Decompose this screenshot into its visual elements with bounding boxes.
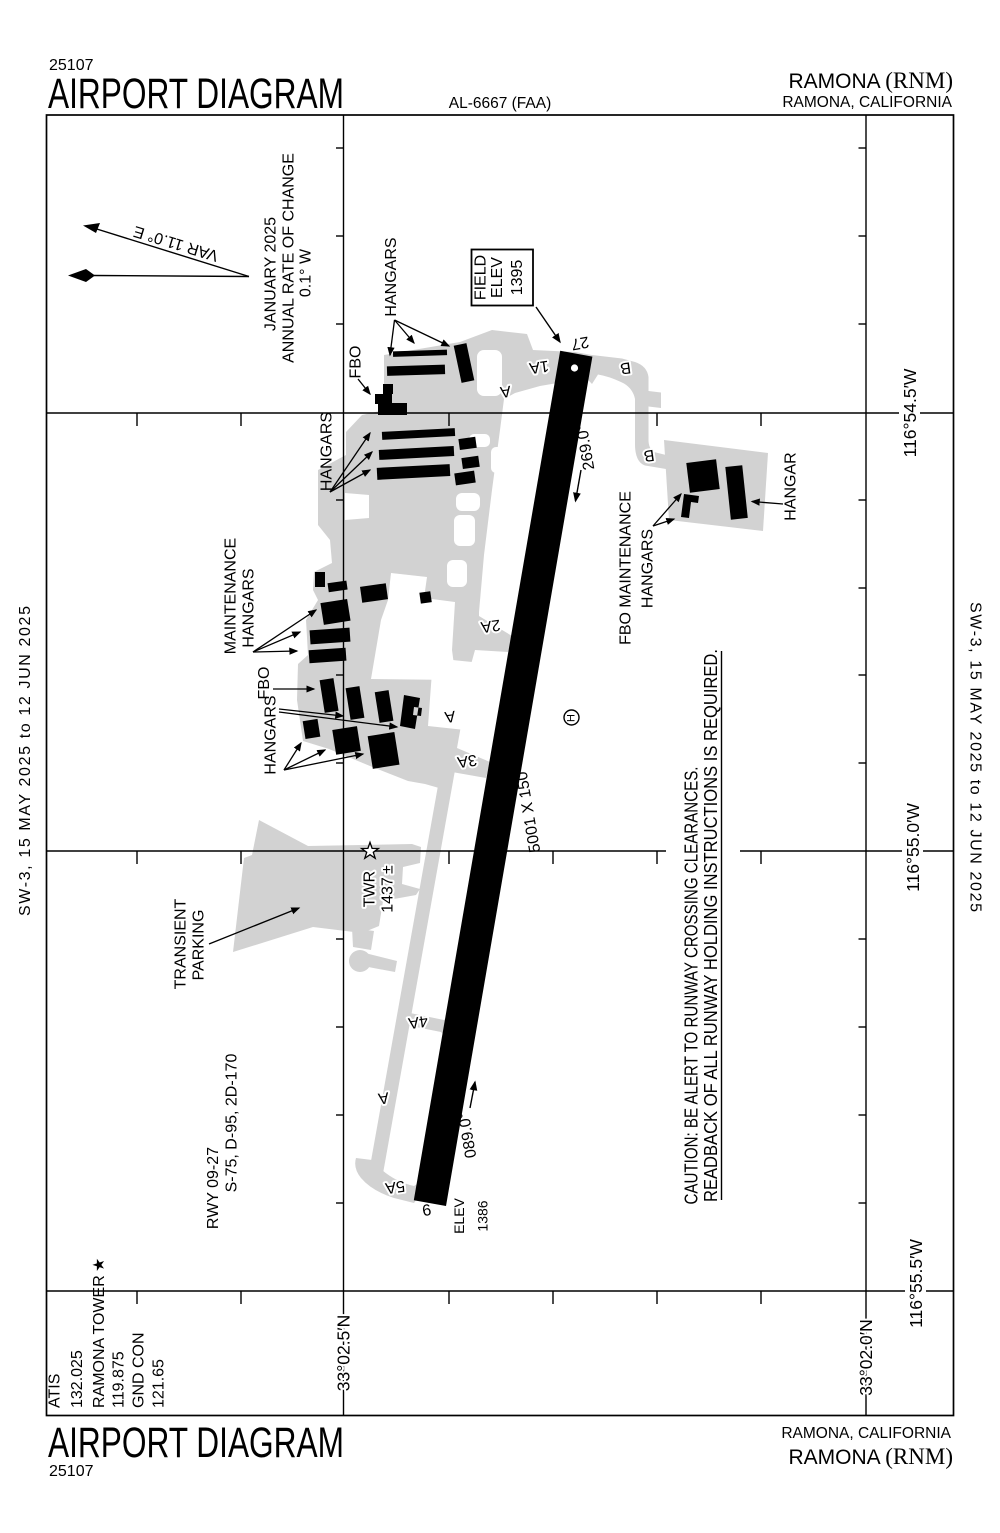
svg-text:5A: 5A — [384, 1177, 406, 1197]
svg-text:SW-3, 15 MAY 2025 to 12 JUN: SW-3, 15 MAY 2025 to 12 JUN 2025 — [17, 606, 34, 916]
svg-text:RAMONA (RNM): RAMONA (RNM) — [788, 68, 953, 93]
svg-text:121.65: 121.65 — [151, 1359, 168, 1408]
svg-text:CAUTION: BE ALERT TO RUNWAY C: CAUTION: BE ALERT TO RUNWAY CROSSING CLE… — [681, 767, 702, 1205]
svg-text:0.1° W: 0.1° W — [298, 248, 315, 297]
svg-text:FBO: FBO — [256, 667, 273, 700]
svg-text:1395: 1395 — [509, 260, 526, 296]
svg-text:READBACK OF ALL RUNWAY HOLDING: READBACK OF ALL RUNWAY HOLDING INSTRUCTI… — [700, 649, 721, 1202]
svg-text:HANGARS: HANGARS — [241, 568, 258, 647]
svg-text:116°55.5′W: 116°55.5′W — [906, 1239, 926, 1328]
svg-text:PARKING: PARKING — [191, 910, 208, 981]
svg-text:116°54.5′W: 116°54.5′W — [900, 368, 920, 457]
svg-text:JANUARY 2025: JANUARY 2025 — [263, 217, 280, 331]
svg-text:FBO: FBO — [348, 346, 365, 379]
svg-text:RAMONA (RNM): RAMONA (RNM) — [788, 1444, 953, 1469]
svg-text:FIELD: FIELD — [473, 255, 490, 300]
svg-text:TWR: TWR — [362, 871, 379, 907]
svg-text:MAINTENANCE: MAINTENANCE — [223, 538, 240, 654]
svg-text:1A: 1A — [528, 357, 550, 377]
svg-text:2A: 2A — [479, 616, 501, 636]
svg-text:HANGARS: HANGARS — [263, 695, 280, 774]
svg-text:1386: 1386 — [475, 1200, 491, 1231]
svg-text:116°55.0′W: 116°55.0′W — [903, 803, 923, 892]
svg-text:RAMONA, CALIFORNIA: RAMONA, CALIFORNIA — [781, 1425, 951, 1442]
svg-text:4A: 4A — [407, 1012, 429, 1032]
svg-text:HANGARS: HANGARS — [319, 412, 336, 491]
svg-text:ATIS: ATIS — [47, 1374, 64, 1408]
svg-text:TRANSIENT: TRANSIENT — [173, 898, 190, 989]
svg-text:H: H — [566, 714, 578, 722]
svg-text:25107: 25107 — [49, 1463, 94, 1480]
svg-text:RWY 09-27: RWY 09-27 — [205, 1147, 222, 1229]
svg-text:ANNUAL RATE OF CHANGE: ANNUAL RATE OF CHANGE — [281, 153, 298, 363]
svg-text:27: 27 — [570, 333, 591, 353]
svg-text:3A: 3A — [456, 751, 478, 771]
svg-text:33°02.5′N: 33°02.5′N — [334, 1315, 354, 1391]
svg-text:SW-3, 15 MAY 2025 to 12 JUN: SW-3, 15 MAY 2025 to 12 JUN 2025 — [967, 602, 984, 912]
svg-text:AL-6667 (FAA): AL-6667 (FAA) — [449, 95, 552, 112]
svg-text:AIRPORT DIAGRAM: AIRPORT DIAGRAM — [48, 70, 344, 118]
svg-text:GND CON: GND CON — [131, 1332, 148, 1408]
svg-text:HANGARS: HANGARS — [640, 529, 657, 608]
svg-text:HANGARS: HANGARS — [383, 237, 400, 316]
svg-text:119.875: 119.875 — [111, 1351, 128, 1408]
svg-text:HANGAR: HANGAR — [783, 452, 800, 520]
svg-text:132.025: 132.025 — [69, 1350, 86, 1408]
svg-text:33°02.0′N: 33°02.0′N — [856, 1319, 876, 1395]
svg-text:ELEV: ELEV — [489, 257, 506, 298]
svg-text:ELEV: ELEV — [451, 1197, 467, 1233]
svg-text:FBO MAINTENANCE: FBO MAINTENANCE — [618, 491, 635, 645]
svg-text:AIRPORT DIAGRAM: AIRPORT DIAGRAM — [48, 1419, 344, 1467]
svg-text:RAMONA TOWER ★: RAMONA TOWER ★ — [91, 1258, 108, 1408]
svg-text:RAMONA, CALIFORNIA: RAMONA, CALIFORNIA — [782, 94, 952, 111]
svg-text:S-75, D-95, 2D-170: S-75, D-95, 2D-170 — [224, 1054, 241, 1193]
svg-text:1437 ±: 1437 ± — [380, 865, 397, 913]
